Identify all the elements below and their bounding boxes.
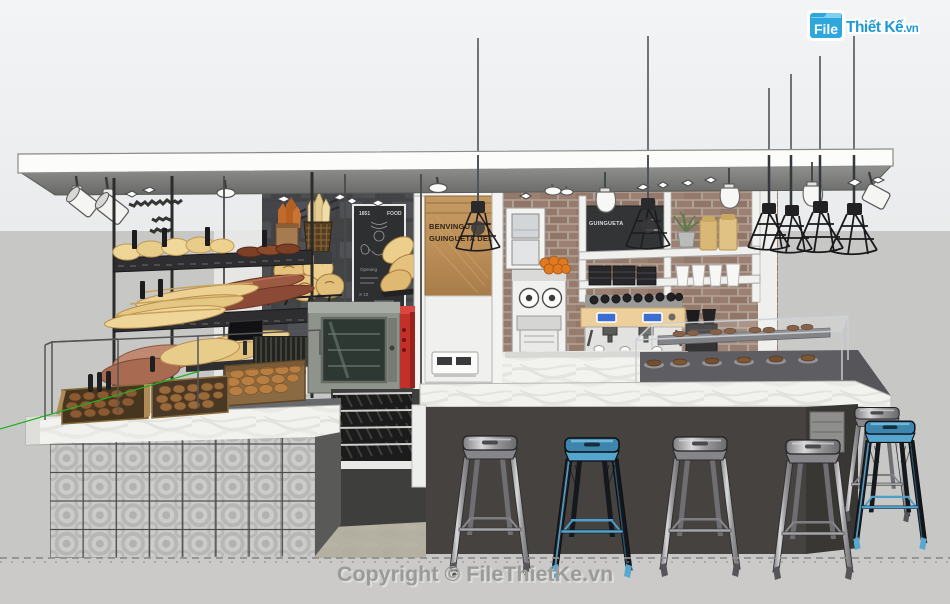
svg-text:Copyright © FileThietKe.vn: Copyright © FileThietKe.vn [337, 562, 613, 586]
svg-text:Opening: Opening [360, 267, 378, 272]
svg-text:GUINGUETA: GUINGUETA [589, 221, 623, 227]
svg-text:File: File [814, 21, 838, 37]
svg-text:1851: 1851 [359, 211, 370, 217]
svg-text:X 10: X 10 [359, 292, 369, 297]
svg-text:FOOD: FOOD [387, 211, 402, 217]
